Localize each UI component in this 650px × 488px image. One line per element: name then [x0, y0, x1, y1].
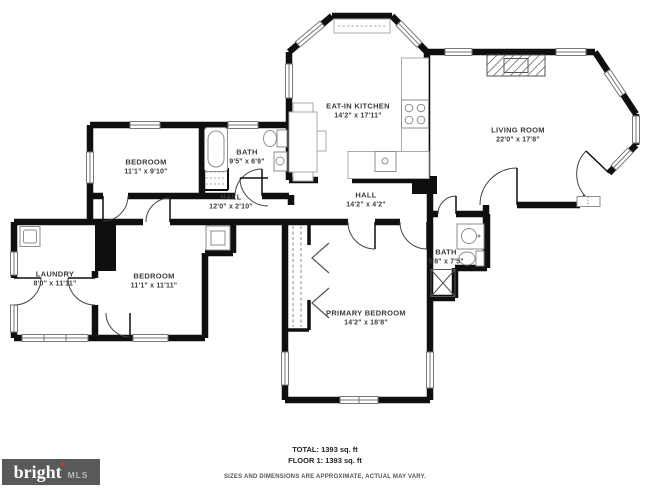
brightmls-logo: brightMLS [2, 459, 100, 485]
logo-suffix-text: MLS [68, 470, 89, 480]
windows [11, 21, 640, 404]
water-heater-icon [206, 226, 230, 250]
floor-plan-drawing [0, 0, 650, 488]
shower-icon [431, 270, 455, 297]
kitchen-sink-icon [375, 152, 396, 172]
toilet-icon [459, 251, 484, 266]
bath1-sink-icon [274, 152, 287, 171]
kitchen-table-icon [289, 103, 326, 181]
stove-icon [402, 100, 429, 128]
bath1-fixtures [205, 128, 288, 172]
logo-flame-icon [61, 462, 65, 466]
living-room-unit-icon [577, 197, 600, 207]
total-area-text: TOTAL: 1393 sq. ft [0, 445, 650, 456]
fireplace-icon [487, 55, 545, 76]
logo-brand-text: bright [14, 463, 62, 481]
chimney-block [95, 222, 116, 271]
laundry-fixtures [20, 226, 230, 250]
kitchen-fixtures [289, 19, 429, 181]
bathtub-icon [205, 128, 228, 172]
toilet-icon [264, 130, 288, 147]
floor-plan-page: EAT-IN KITCHEN 14'2" x 17'11" LIVING ROO… [0, 0, 650, 488]
washer-icon [20, 227, 40, 247]
bath2-vanity-sink-icon [457, 224, 484, 249]
